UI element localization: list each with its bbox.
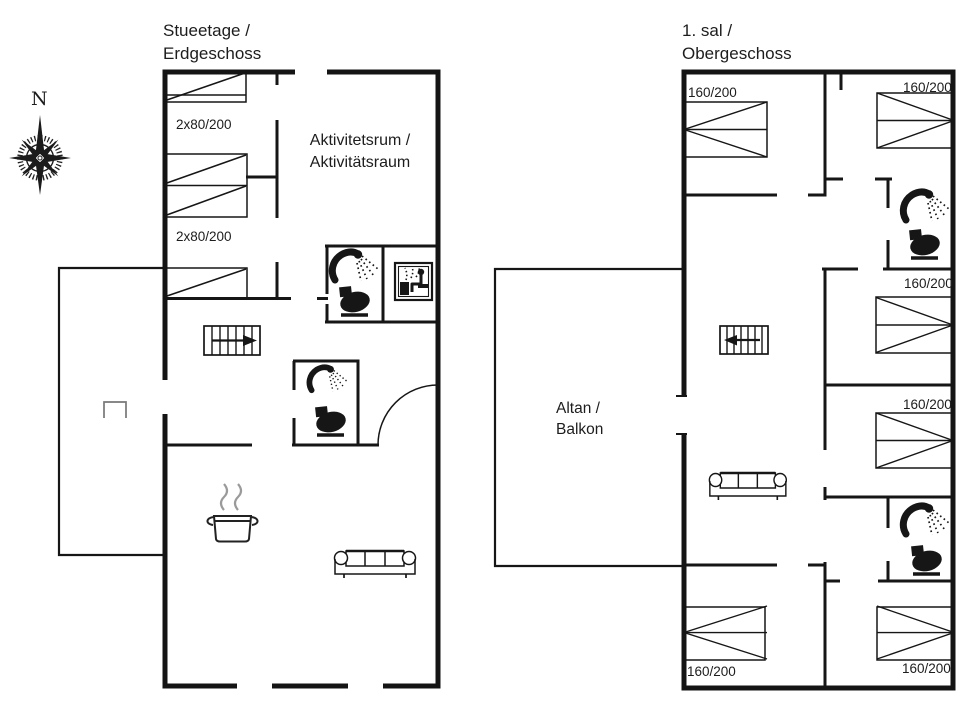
double-bed-icon <box>877 606 954 660</box>
stairs-icon <box>720 326 768 354</box>
bunk-bed-icon <box>164 154 247 217</box>
compass-north-label: N <box>31 88 48 110</box>
toilet-icon <box>910 545 944 574</box>
shower-icon <box>903 190 949 221</box>
bunk-bed-icon <box>164 268 247 299</box>
upper-floor-title-line2: Obergeschoss <box>682 44 792 63</box>
bed-size-label: 2x80/200 <box>176 117 232 132</box>
bed-size-label: 2x80/200 <box>176 229 232 244</box>
balcony-label: Altan /Balkon <box>556 398 603 440</box>
toilet-icon <box>908 229 942 258</box>
bed-size-label: 160/200 <box>688 85 737 100</box>
stairs-icon <box>204 326 260 355</box>
sofa-icon <box>709 473 786 500</box>
toilet-icon <box>314 406 348 435</box>
ground-floor-title-line2: Erdgeschoss <box>163 44 261 63</box>
balcony-door-jambs <box>676 396 687 434</box>
activity-room-label-line1: Aktivitetsrum / <box>310 132 410 149</box>
upper-floor-title-line1: 1. sal / <box>682 21 732 40</box>
bed-size-label: 160/200 <box>904 276 953 291</box>
sauna-icon <box>395 263 432 300</box>
double-bed-icon <box>876 297 953 353</box>
floorplan-drawing <box>0 0 960 720</box>
shower-icon <box>903 504 949 535</box>
compass-rose-icon <box>3 115 77 195</box>
sofa-icon <box>335 551 416 578</box>
ground-floor-title: Stueetage /Erdgeschoss <box>163 19 261 65</box>
floorplan-page: N Stueetage /Erdgeschoss 1. sal /Oberges… <box>0 0 960 720</box>
exterior-walls <box>682 70 956 691</box>
bed-size-label: 160/200 <box>903 80 952 95</box>
balcony-label-line2: Balkon <box>556 421 603 438</box>
bunk-bed-icon <box>164 72 246 102</box>
shower-icon <box>309 366 346 391</box>
bed-size-label: 160/200 <box>687 664 736 679</box>
double-bed-icon <box>684 102 767 157</box>
activity-room-label: Aktivitetsrum /Aktivitätsraum <box>280 130 440 174</box>
interior-walls <box>684 70 953 688</box>
shower-icon <box>332 250 378 281</box>
activity-room-label-line2: Aktivitätsraum <box>310 154 410 171</box>
bed-size-label: 160/200 <box>903 397 952 412</box>
door-arc <box>378 385 438 445</box>
terrace-outline <box>58 267 166 556</box>
double-bed-icon <box>684 606 767 660</box>
upper-floor-title: 1. sal /Obergeschoss <box>682 19 792 65</box>
double-bed-icon <box>877 93 954 148</box>
upper-floor-plan <box>494 70 956 691</box>
double-bed-icon <box>876 413 953 468</box>
stove-pot-icon <box>207 484 257 542</box>
ground-floor-title-line1: Stueetage / <box>163 21 250 40</box>
bed-size-label: 160/200 <box>902 661 951 676</box>
balcony-label-line1: Altan / <box>556 400 600 417</box>
toilet-icon <box>338 286 372 315</box>
terrace-grill-icon <box>104 402 126 418</box>
